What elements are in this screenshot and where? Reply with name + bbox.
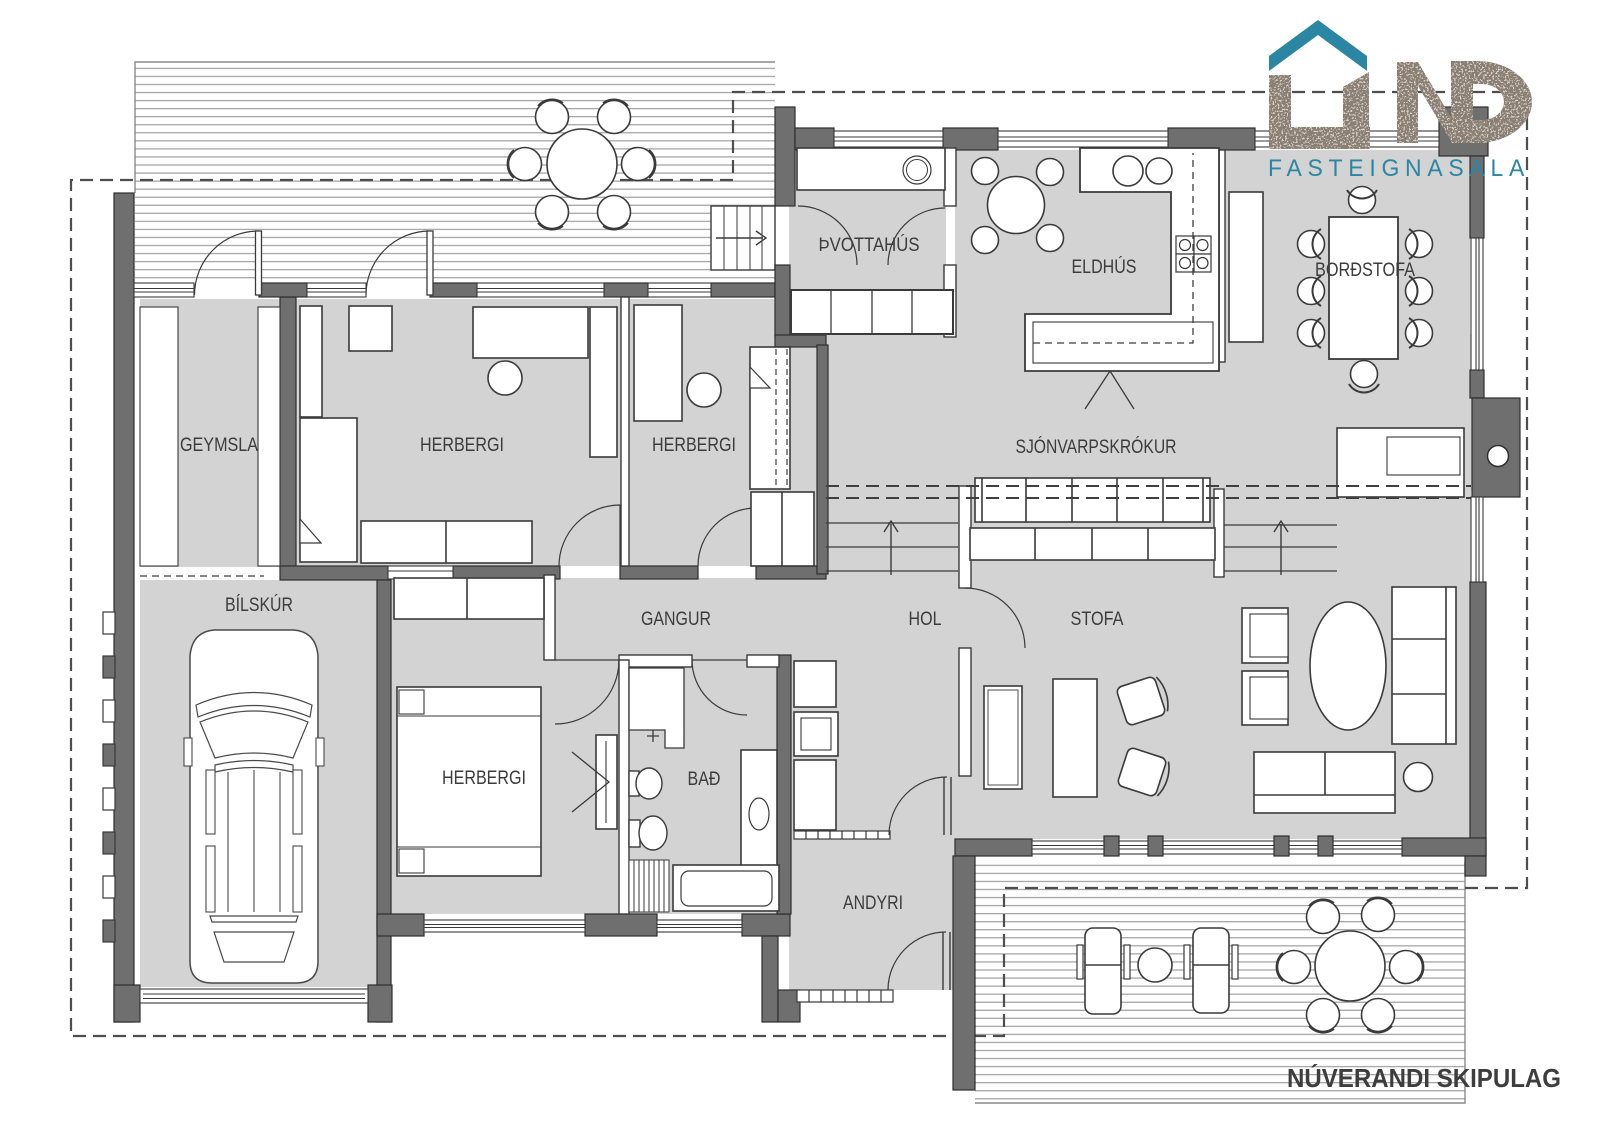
svg-text:HERBERGI: HERBERGI (652, 434, 736, 456)
svg-text:GANGUR: GANGUR (641, 608, 711, 630)
svg-text:FASTEIGNASALA: FASTEIGNASALA (1268, 155, 1530, 182)
svg-text:SJÓNVARPSKRÓKUR: SJÓNVARPSKRÓKUR (1016, 435, 1177, 458)
svg-text:NÚVERANDI SKIPULAG: NÚVERANDI SKIPULAG (1287, 1063, 1561, 1093)
svg-text:ÞVOTTAHÚS: ÞVOTTAHÚS (819, 233, 920, 256)
svg-text:HERBERGI: HERBERGI (420, 434, 504, 456)
svg-text:ELDHÚS: ELDHÚS (1072, 255, 1137, 278)
svg-text:ANDYRI: ANDYRI (843, 892, 903, 914)
svg-text:HERBERGI: HERBERGI (442, 767, 526, 789)
svg-text:GEYMSLA: GEYMSLA (180, 434, 258, 456)
svg-text:BAÐ: BAÐ (688, 768, 721, 790)
svg-text:BORÐSTOFA: BORÐSTOFA (1315, 259, 1415, 281)
svg-text:HOL: HOL (909, 608, 942, 630)
svg-text:BÍLSKÚR: BÍLSKÚR (225, 593, 293, 616)
svg-text:STOFA: STOFA (1071, 608, 1124, 630)
